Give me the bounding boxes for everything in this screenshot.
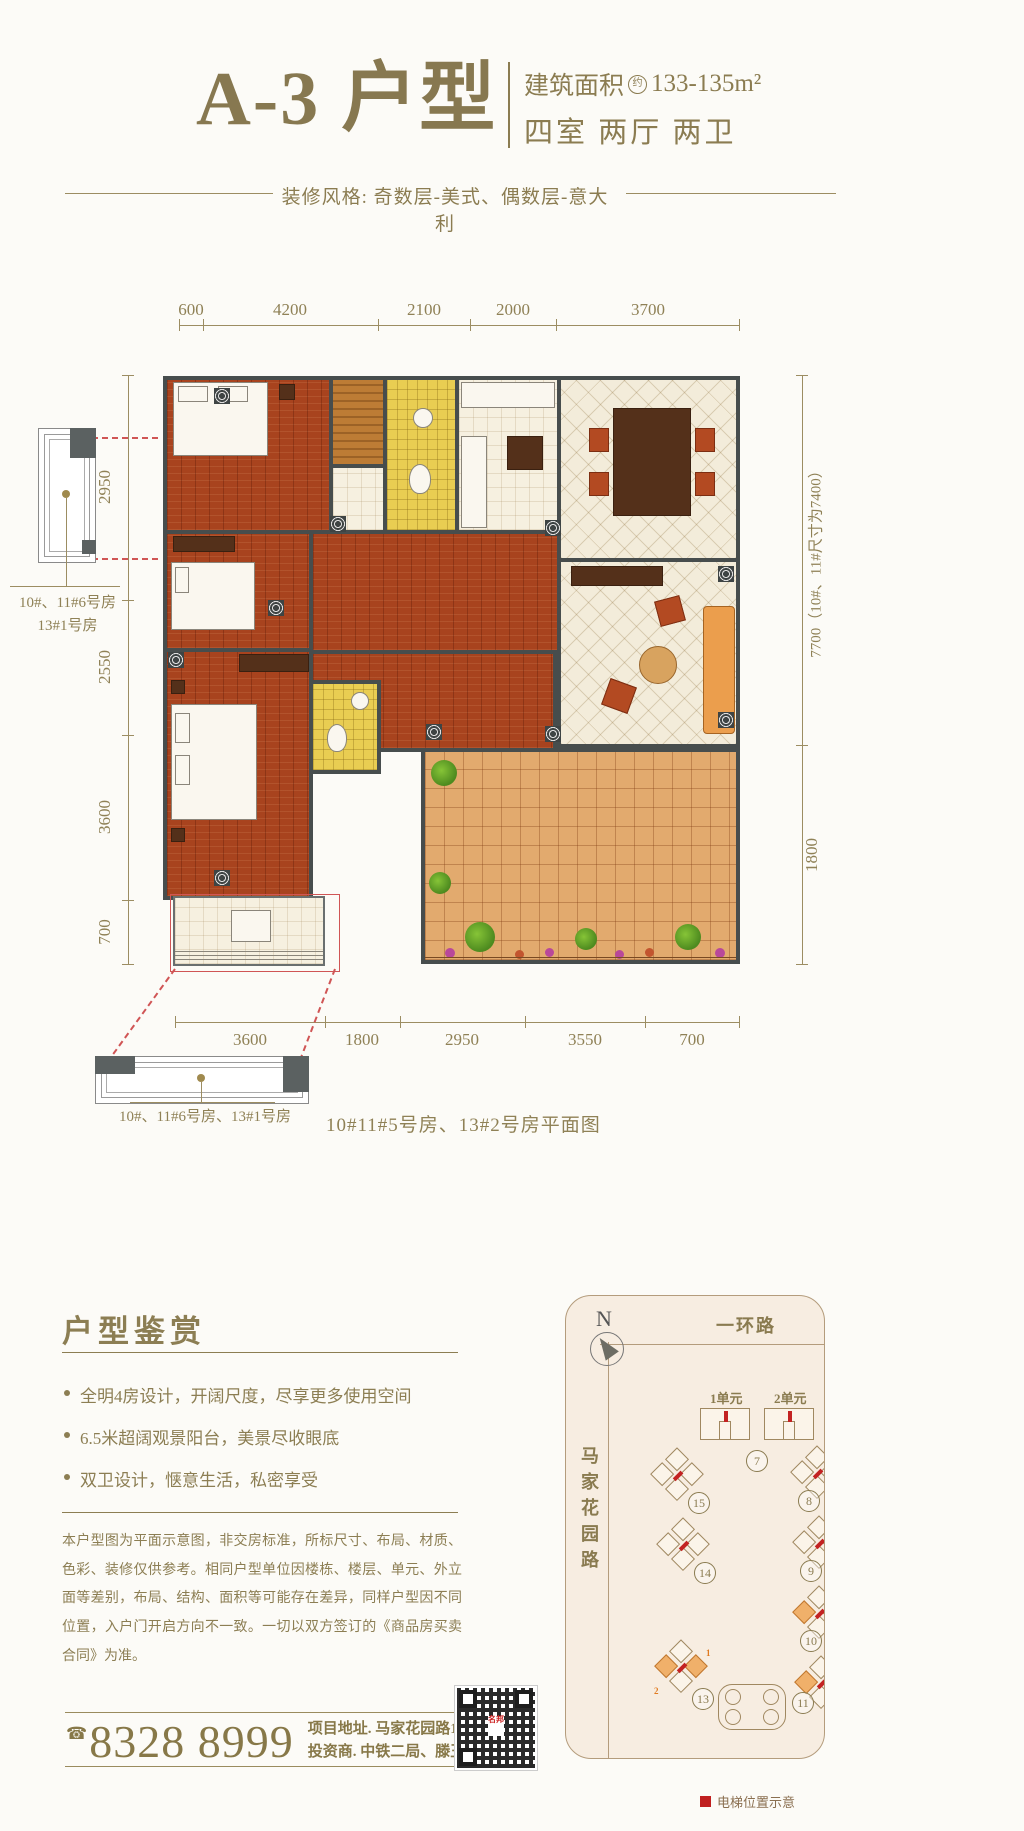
dim-left-700: 700 xyxy=(95,904,115,960)
unit2-label: 2单元 xyxy=(774,1388,807,1407)
dim-line-left xyxy=(128,375,129,965)
dim-top-2100: 2100 xyxy=(394,300,454,320)
highlight-box xyxy=(170,894,340,972)
area-value: 133-135m² xyxy=(651,70,761,98)
contact-rule-top xyxy=(65,1712,457,1713)
title-divider xyxy=(508,62,510,148)
dim-right-1800: 1800 xyxy=(802,827,822,883)
bathroom-1 xyxy=(383,376,459,534)
appreciation-heading: 户型鉴赏 xyxy=(62,1306,206,1351)
wardrobe xyxy=(329,376,387,468)
fragment-left-label: 10#、11#6号房 13#1号房 xyxy=(0,592,135,637)
compass-icon xyxy=(590,1332,624,1366)
dim-line-bottom xyxy=(175,1022,740,1023)
subtitle-rule-right xyxy=(626,193,836,194)
kitchen xyxy=(455,376,561,534)
site-map: 一环路 马家花园路 N 1单元 2单元 7 15 8 14 9 10 1 2 1… xyxy=(565,1295,825,1759)
dim-left-2950: 2950 xyxy=(95,459,115,515)
corridor xyxy=(309,530,561,654)
dim-bottom-3550: 3550 xyxy=(555,1030,615,1050)
dim-top-600: 600 xyxy=(161,300,221,320)
bullet-dot xyxy=(64,1390,70,1396)
brochure-page: A-3 户型 建筑面积约133-135m² 四室 两厅 两卫 装修风格: 奇数层… xyxy=(0,0,1024,1831)
building-14-number: 14 xyxy=(694,1562,716,1584)
elevator-legend-label: 电梯位置示意 xyxy=(717,1792,795,1811)
dim-right-7700: 7700（10#、11#尺寸为7400） xyxy=(805,406,826,716)
style-line: 装修风格: 奇数层-美式、偶数层-意大利 xyxy=(276,182,614,236)
building-10-number: 10 xyxy=(800,1630,822,1652)
dim-left-3600: 3600 xyxy=(95,789,115,845)
qr-code: 名邦 xyxy=(455,1686,537,1770)
qr-logo: 名邦 xyxy=(488,1716,504,1736)
building-7-unit2 xyxy=(764,1408,814,1440)
building-11-number: 11 xyxy=(792,1692,814,1714)
road-left-label: 马家花园路 xyxy=(576,1446,602,1576)
subtitle-rule-left xyxy=(65,193,273,194)
disclaimer-text: 本户型图为平面示意图，非交房标准，所标尺寸、布局、材质、色彩、装修仅供参考。相同… xyxy=(62,1528,462,1671)
dim-bottom-2950: 2950 xyxy=(432,1030,492,1050)
contact-rule-bottom xyxy=(65,1766,457,1767)
terrace xyxy=(421,748,740,964)
building-7-unit1 xyxy=(700,1408,750,1440)
bullet-dot xyxy=(64,1474,70,1480)
road-top-label: 一环路 xyxy=(716,1312,776,1338)
bullet-2: 6.5米超阔观景阳台，美景尽收眼底 xyxy=(64,1424,458,1449)
bullet-1: 全明4房设计，开阔尺度，尽享更多使用空间 xyxy=(64,1382,458,1407)
bedroom-2 xyxy=(163,530,313,652)
page-title: A-3 户型 xyxy=(196,36,497,146)
elevator-legend-icon xyxy=(700,1796,711,1807)
building-15-number: 15 xyxy=(688,1492,710,1514)
dim-bottom-700: 700 xyxy=(662,1030,722,1050)
living-room xyxy=(557,558,740,748)
bedroom-1 xyxy=(163,376,333,534)
compass-n-label: N xyxy=(596,1306,612,1332)
unit1-label: 1单元 xyxy=(710,1388,743,1407)
dining-room xyxy=(557,376,740,562)
fragment-left-dot xyxy=(62,490,70,498)
fragment-bottom-dot xyxy=(197,1074,205,1082)
dim-top-3700: 3700 xyxy=(618,300,678,320)
building-13-unit-1: 1 xyxy=(706,1648,711,1658)
building-13-number: 13 xyxy=(692,1688,714,1710)
road-left-line xyxy=(608,1342,609,1758)
rooms-line: 四室 两厅 两卫 xyxy=(524,109,761,151)
contact-bar: ☎ 8328 8999 项目地址. 马家花园路16号 投资商. 中铁二局、滕王阁… xyxy=(66,1716,458,1766)
dim-bottom-3600: 3600 xyxy=(220,1030,280,1050)
header-spec: 建筑面积约133-135m² 四室 两厅 两卫 xyxy=(524,66,761,151)
dim-top-2000: 2000 xyxy=(483,300,543,320)
bullet-3: 双卫设计，惬意生活，私密享受 xyxy=(64,1466,458,1491)
dim-bottom-1800: 1800 xyxy=(332,1030,392,1050)
phone-icon: ☎ xyxy=(66,1724,87,1744)
bedroom-3 xyxy=(163,648,313,900)
dim-left-2550: 2550 xyxy=(95,639,115,695)
dim-top-4200: 4200 xyxy=(260,300,320,320)
disclaimer-rule xyxy=(62,1512,458,1513)
building-13-unit-2: 2 xyxy=(654,1686,659,1696)
area-prefix: 建筑面积 xyxy=(524,66,624,102)
map-legend: 电梯位置示意 xyxy=(700,1792,795,1811)
bullet-dot xyxy=(64,1432,70,1438)
building-9-number: 9 xyxy=(800,1560,822,1582)
plan-caption: 10#11#5号房、13#2号房平面图 xyxy=(326,1110,601,1137)
appreciation-rule xyxy=(62,1352,458,1353)
building-7-number: 7 xyxy=(746,1450,768,1472)
clubhouse xyxy=(718,1684,786,1730)
dim-line-top xyxy=(179,325,740,326)
road-top-line xyxy=(600,1344,824,1345)
approx-circle: 约 xyxy=(628,75,647,94)
bathroom-2 xyxy=(309,680,381,774)
fragment-bottom-label: 10#、11#6号房、13#1号房 xyxy=(60,1106,350,1129)
phone-number[interactable]: 8328 8999 xyxy=(89,1715,294,1768)
building-8-number: 8 xyxy=(798,1490,820,1512)
